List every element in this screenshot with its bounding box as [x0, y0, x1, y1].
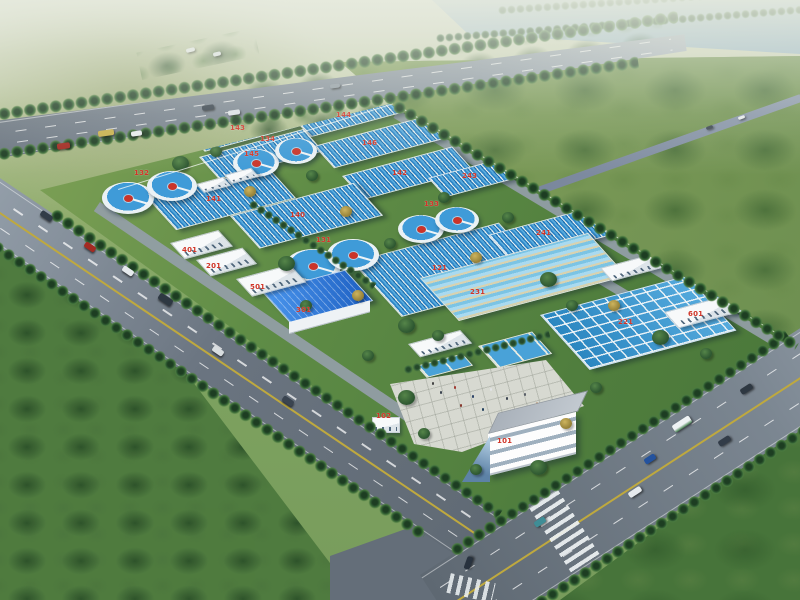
label-blower-building: 201: [206, 262, 221, 270]
tree: [418, 428, 430, 439]
tree: [608, 300, 620, 311]
tree: [540, 272, 557, 287]
tree: [432, 330, 444, 341]
label-basin-143: 143: [230, 124, 245, 132]
label-storage: 601: [688, 310, 703, 318]
label-workshop: 301: [296, 306, 311, 314]
tree: [278, 256, 295, 271]
tree: [470, 464, 482, 475]
label-basin-strips: 231: [470, 288, 485, 296]
label-clarifier-pair-1: 132: [134, 169, 149, 177]
tree: [362, 350, 374, 361]
tree: [590, 382, 602, 393]
label-basin-146: 146: [362, 139, 377, 147]
label-basin-142: 142: [392, 169, 407, 177]
label-gate: 102: [376, 412, 391, 420]
tree: [502, 212, 514, 223]
label-basin-140: 140: [290, 211, 305, 219]
label-clarifier-pair-4: 133: [424, 200, 439, 208]
tree: [438, 192, 450, 203]
tree: [352, 290, 364, 301]
tree: [470, 252, 482, 263]
tree: [340, 206, 352, 217]
label-dosing-building: 401: [182, 246, 197, 254]
tree: [244, 186, 256, 197]
label-office: 101: [497, 437, 512, 445]
tree: [398, 318, 415, 333]
label-basin-241: 241: [536, 229, 551, 237]
tree: [560, 418, 572, 429]
plaza-people: [432, 382, 434, 385]
tree: [384, 238, 396, 249]
label-basin-141: 141: [206, 195, 221, 203]
tree: [566, 300, 578, 311]
clarifier-tank: [435, 207, 479, 233]
label-clarifier-pair-2: 134: [260, 135, 275, 143]
tree: [652, 330, 669, 345]
clarifier-tank: [275, 138, 317, 164]
label-basin-filter: 221: [618, 318, 633, 326]
clarifier-tank: [147, 171, 197, 201]
label-substation: 501: [250, 283, 265, 291]
tree: [306, 170, 318, 181]
label-clarifier-pair-3: 131: [316, 236, 331, 244]
aerial-render-stage: 101 102 201 301 401 501 601 132 134 131 …: [0, 0, 800, 600]
label-basin-121: 121: [432, 264, 447, 272]
tree: [700, 348, 712, 359]
label-basin-243: 243: [462, 172, 477, 180]
label-basin-145: 145: [244, 150, 259, 158]
label-basin-144: 144: [336, 111, 351, 119]
tree: [530, 460, 547, 475]
tree: [398, 390, 415, 405]
